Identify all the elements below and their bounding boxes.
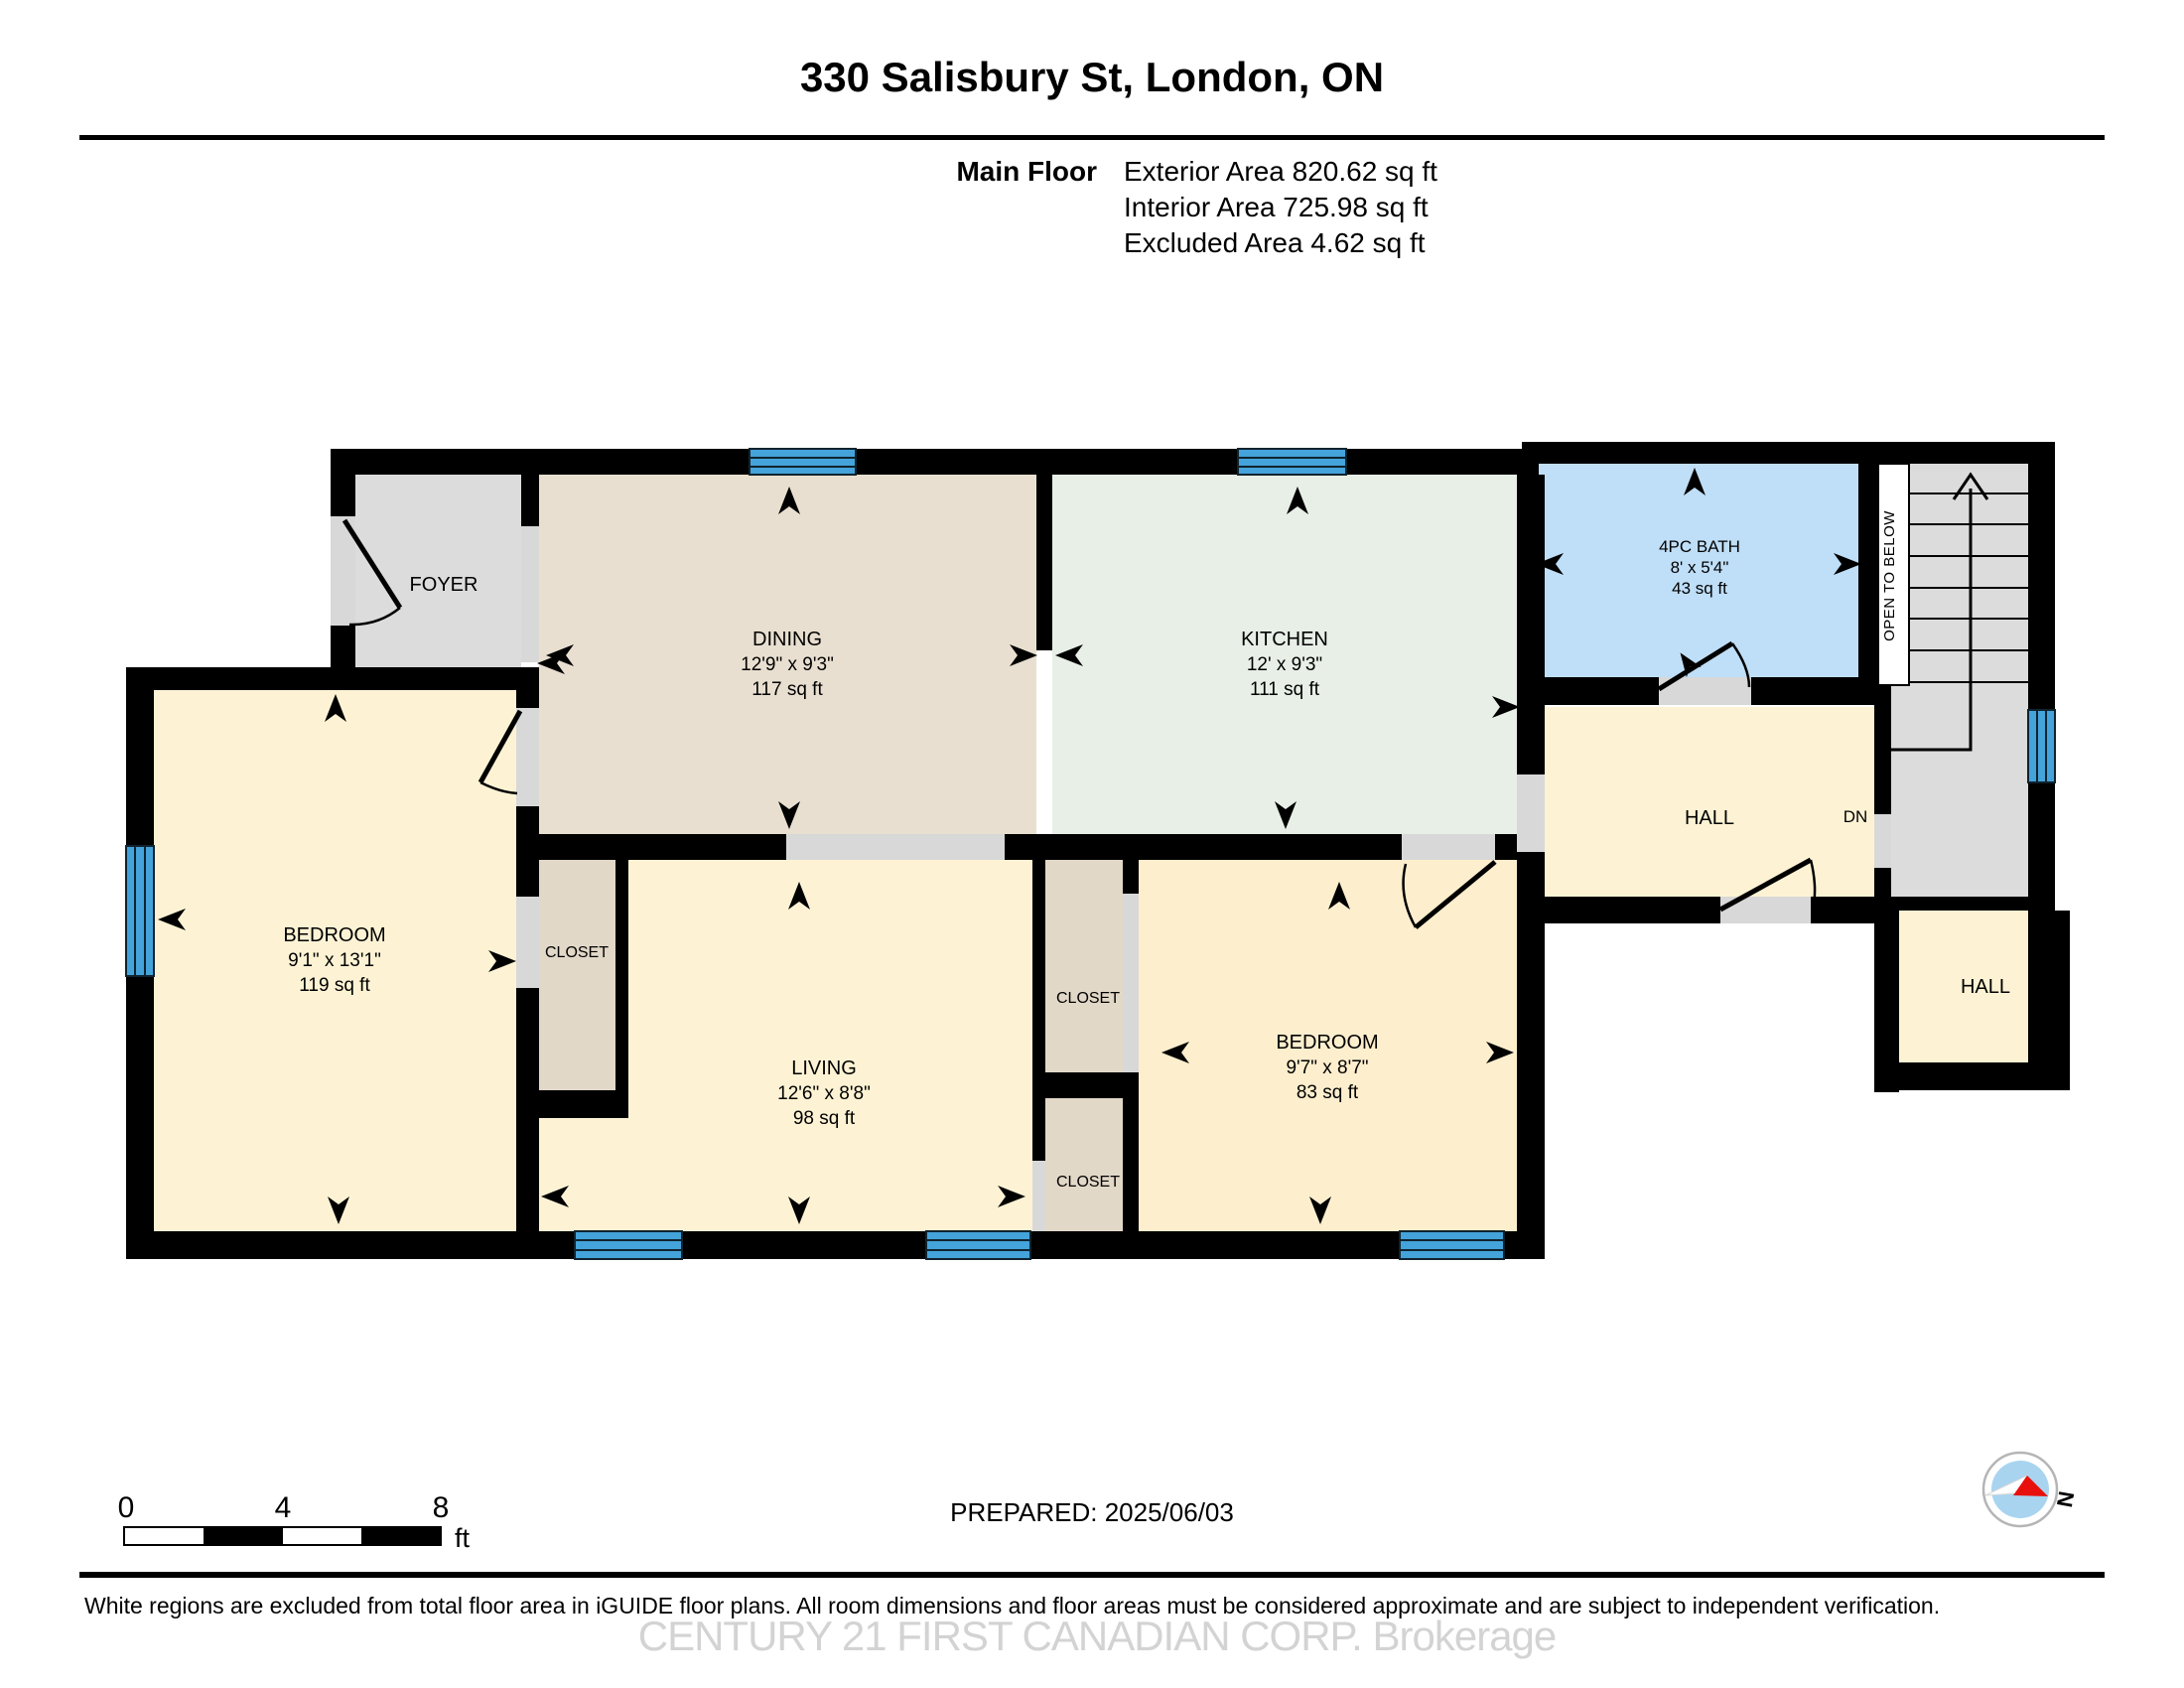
kitchen-area: 111 sq ft [1250,679,1320,700]
excluded-area: Excluded Area 4.62 sq ft [1124,227,1426,258]
scale-tick-8: 8 [433,1491,450,1524]
prepared-date: PREPARED: 2025/06/03 [950,1497,1234,1527]
dining-area: 117 sq ft [751,679,823,700]
scale-tick-0: 0 [118,1491,135,1524]
exterior-area: Exterior Area 820.62 sq ft [1124,156,1437,187]
room-closet-mid-bottom [1045,1098,1123,1231]
room-living-extension [539,1118,628,1231]
foyer-dining-opening [521,526,539,662]
brokerage-watermark: CENTURY 21 FIRST CANADIAN CORP. Brokerag… [638,1613,1557,1659]
scale-tick-4: 4 [275,1491,292,1524]
closet-mid-bottom-opening [1032,1161,1045,1231]
hall-upper-label: HALL [1685,807,1734,829]
living-area: 98 sq ft [793,1108,856,1129]
bedroom-left-door-opening [516,708,539,806]
open-to-below-label: OPEN TO BELOW [1881,510,1898,641]
room-closet-mid-top [1045,860,1123,1072]
closet-mid-top-opening [1123,894,1139,1072]
scale-bar: 0 4 8 ft [118,1491,471,1553]
living-label: LIVING [791,1057,857,1079]
room-living [628,860,1032,1231]
foyer-label: FOYER [410,574,478,596]
room-hall-upper [1545,707,1874,897]
bath-label: 4PC BATH [1659,537,1740,556]
compass-icon: N [1983,1453,2079,1526]
window-stairwell [2028,710,2055,782]
hall-lower-label: HALL [1961,976,2010,998]
bedroom-right-label: BEDROOM [1276,1032,1378,1054]
floor-plan-page: 330 Salisbury St, London, ON Main Floor … [0,0,2184,1688]
dining-living-opening [786,834,1005,860]
bedroom-left-area: 119 sq ft [299,975,370,996]
bath-area: 43 sq ft [1672,579,1727,598]
living-dims: 12'6" x 8'8" [777,1083,871,1104]
kitchen-hall-opening [1517,774,1545,852]
kitchen-label: KITCHEN [1241,629,1328,650]
room-closet-left [539,859,615,1090]
page-title: 330 Salisbury St, London, ON [800,54,1384,100]
dining-label: DINING [752,629,822,650]
bedroom-left-dims: 9'1" x 13'1" [288,950,381,971]
bedroom-right-dims: 9'7" x 8'7" [1286,1057,1368,1078]
scale-unit: ft [455,1523,471,1553]
room-foyer [355,475,521,667]
interior-area: Interior Area 725.98 sq ft [1124,192,1429,222]
window-living-left [575,1231,682,1259]
dining-dims: 12'9" x 9'3" [741,654,834,675]
bedroom-left-label: BEDROOM [283,924,385,946]
down-label: DN [1843,807,1868,826]
window-kitchen [1238,449,1346,475]
bedroom-right-door-opening [1402,834,1495,860]
closet-mid-top-label: CLOSET [1056,990,1120,1007]
hall-stairs-opening [1874,814,1891,868]
closet-mid-bottom-label: CLOSET [1056,1174,1120,1191]
window-dining [750,449,856,475]
closet-left-opening [516,897,539,988]
floor-label: Main Floor [956,156,1097,187]
bath-dims: 8' x 5'4" [1671,558,1729,577]
window-bedroom-right [1400,1231,1504,1259]
floor-plan-drawing: 330 Salisbury St, London, ON Main Floor … [0,0,2184,1688]
closet-left-label: CLOSET [545,944,609,961]
kitchen-dims: 12' x 9'3" [1247,654,1322,675]
window-living-right [926,1231,1030,1259]
footer-divider [79,1572,2105,1578]
compass-north-label: N [2052,1489,2079,1509]
window-bedroom-left [126,846,154,976]
bedroom-right-area: 83 sq ft [1297,1082,1359,1103]
header-divider [79,135,2105,140]
